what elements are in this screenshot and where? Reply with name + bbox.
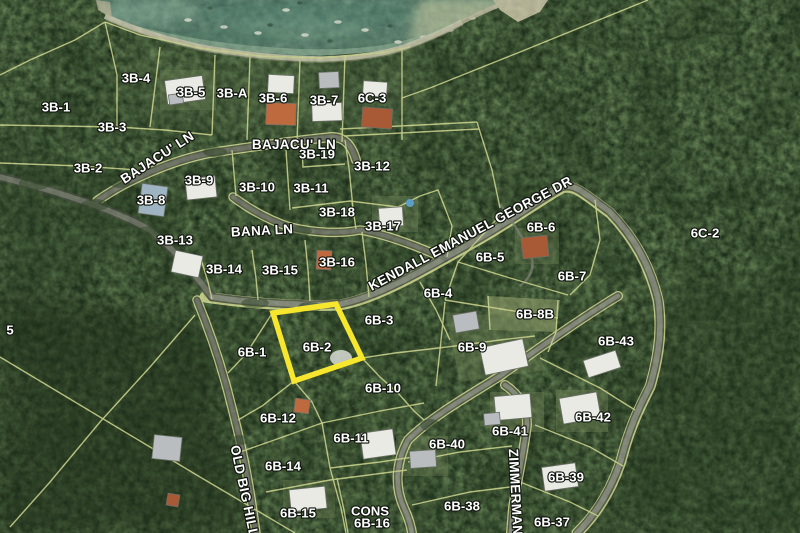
svg-text:3B-10: 3B-10 — [239, 180, 275, 195]
svg-text:6B-12: 6B-12 — [260, 411, 296, 426]
svg-text:6B-6: 6B-6 — [527, 220, 556, 235]
svg-text:6B-9: 6B-9 — [458, 340, 487, 355]
svg-text:3B-11: 3B-11 — [293, 181, 328, 196]
svg-text:3B-A: 3B-A — [217, 86, 248, 101]
svg-text:3B-18: 3B-18 — [319, 205, 355, 220]
svg-text:6B-1: 6B-1 — [238, 345, 267, 360]
svg-text:3B-7: 3B-7 — [310, 93, 339, 108]
svg-text:6B-43: 6B-43 — [598, 334, 634, 349]
svg-text:6B-2: 6B-2 — [303, 340, 332, 355]
svg-text:6B-38: 6B-38 — [444, 499, 480, 514]
svg-text:6B-39: 6B-39 — [548, 470, 584, 485]
svg-text:6B-41: 6B-41 — [492, 424, 528, 439]
svg-text:6B-3: 6B-3 — [365, 313, 394, 328]
svg-text:6B-14: 6B-14 — [265, 459, 302, 474]
svg-text:3B-3: 3B-3 — [98, 120, 127, 135]
svg-text:5: 5 — [6, 323, 13, 338]
svg-text:3B-16: 3B-16 — [319, 255, 355, 270]
svg-text:3B-17: 3B-17 — [365, 219, 401, 234]
svg-text:3B-4: 3B-4 — [122, 71, 151, 86]
svg-text:3B-15: 3B-15 — [262, 263, 298, 278]
svg-text:6B-5: 6B-5 — [476, 250, 505, 265]
svg-text:6B-7: 6B-7 — [558, 269, 587, 284]
svg-text:6B-40: 6B-40 — [429, 437, 465, 452]
svg-text:3B-8: 3B-8 — [137, 193, 166, 208]
svg-text:6B-11: 6B-11 — [333, 431, 368, 446]
svg-text:6B-4: 6B-4 — [424, 286, 453, 301]
svg-text:6C-2: 6C-2 — [691, 226, 720, 241]
svg-text:6B-10: 6B-10 — [365, 381, 401, 396]
svg-text:6B-37: 6B-37 — [534, 515, 570, 530]
svg-text:3B-12: 3B-12 — [354, 159, 390, 174]
svg-text:BAJACU' LN: BAJACU' LN — [252, 137, 336, 152]
svg-text:3B-9: 3B-9 — [185, 173, 214, 188]
svg-text:6B-15: 6B-15 — [280, 506, 316, 521]
svg-text:3B-2: 3B-2 — [74, 161, 103, 176]
svg-text:6B-42: 6B-42 — [575, 410, 611, 425]
svg-text:6B-8B: 6B-8B — [516, 307, 554, 322]
svg-text:3B-1: 3B-1 — [42, 100, 71, 115]
svg-text:6B-16: 6B-16 — [354, 516, 390, 531]
svg-text:3B-5: 3B-5 — [177, 85, 206, 100]
svg-text:3B-13: 3B-13 — [157, 233, 193, 248]
svg-text:6C-3: 6C-3 — [358, 91, 387, 106]
svg-text:3B-6: 3B-6 — [259, 91, 288, 106]
svg-text:3B-14: 3B-14 — [206, 262, 243, 277]
